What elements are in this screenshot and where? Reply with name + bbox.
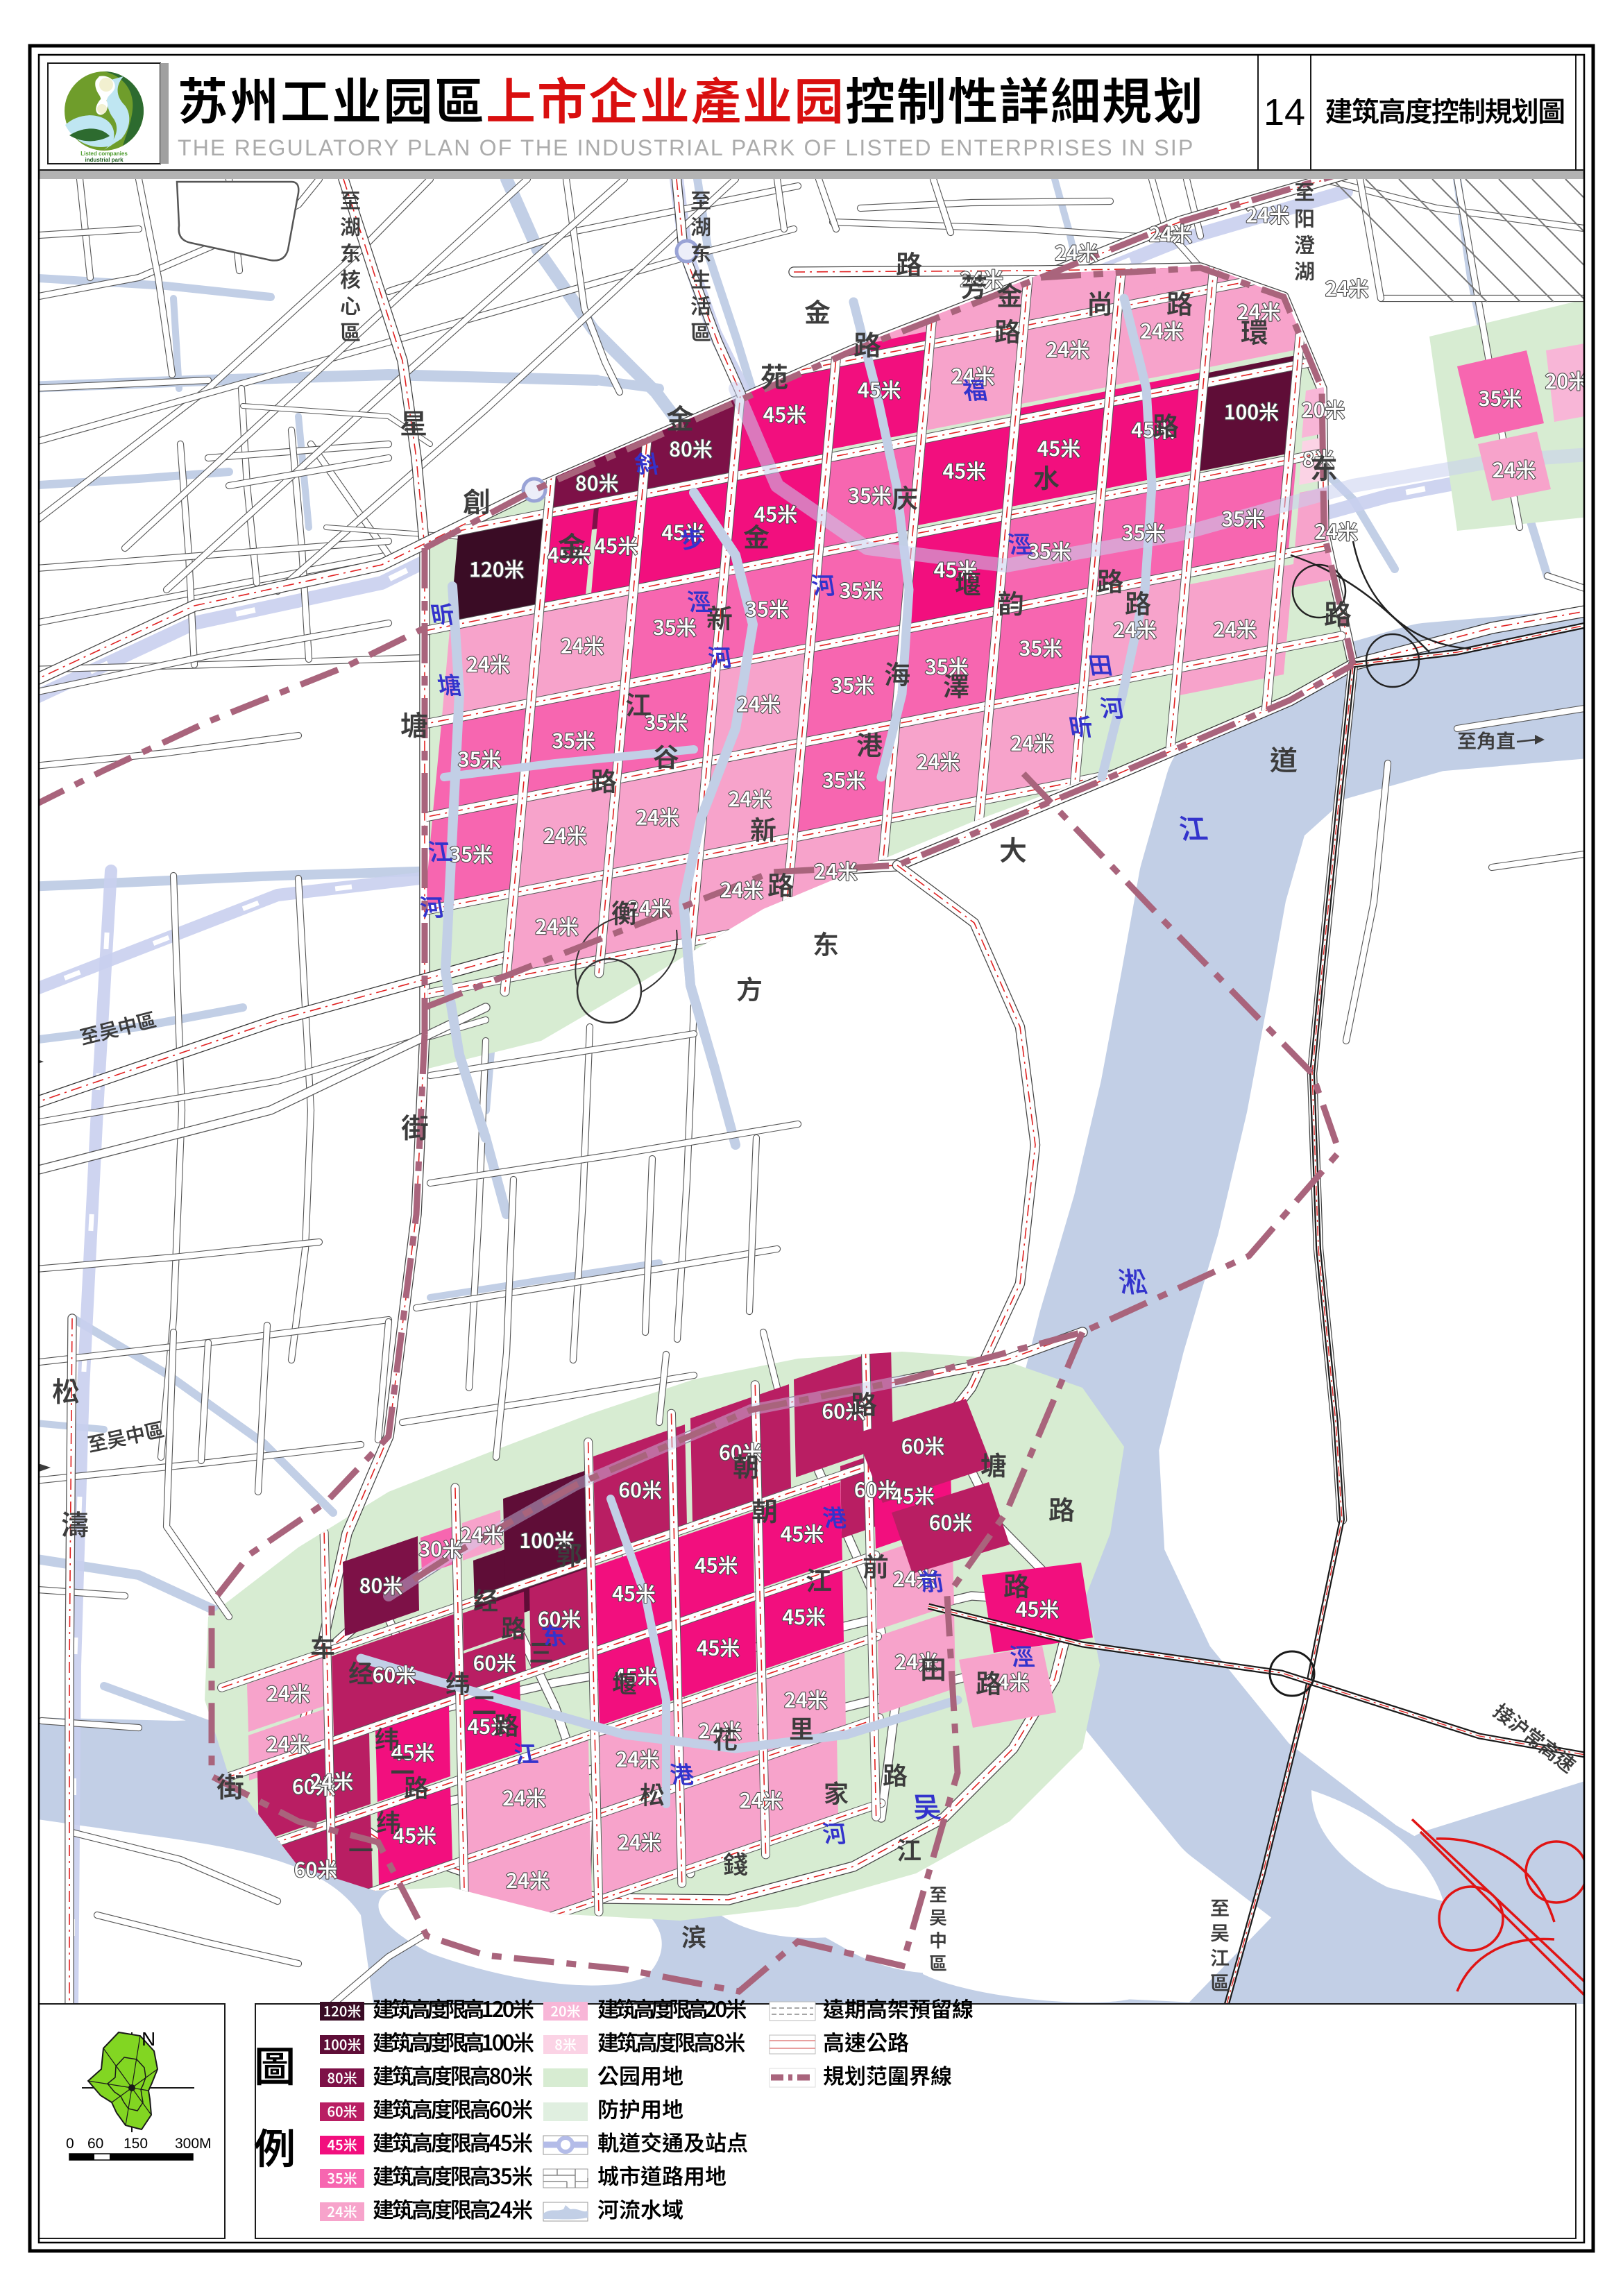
svg-text:industrial park: industrial park [85, 157, 124, 163]
svg-text:60: 60 [87, 2136, 103, 2152]
svg-text:THE REGULATORY PLAN OF THE IND: THE REGULATORY PLAN OF THE INDUSTRIAL PA… [178, 135, 1195, 160]
svg-text:300M: 300M [175, 2136, 212, 2152]
svg-text:Listed companies: Listed companies [80, 151, 128, 157]
svg-text:14: 14 [1264, 92, 1305, 133]
svg-text:0: 0 [66, 2136, 74, 2152]
svg-text:150: 150 [124, 2136, 148, 2152]
svg-text:N: N [142, 2028, 155, 2050]
